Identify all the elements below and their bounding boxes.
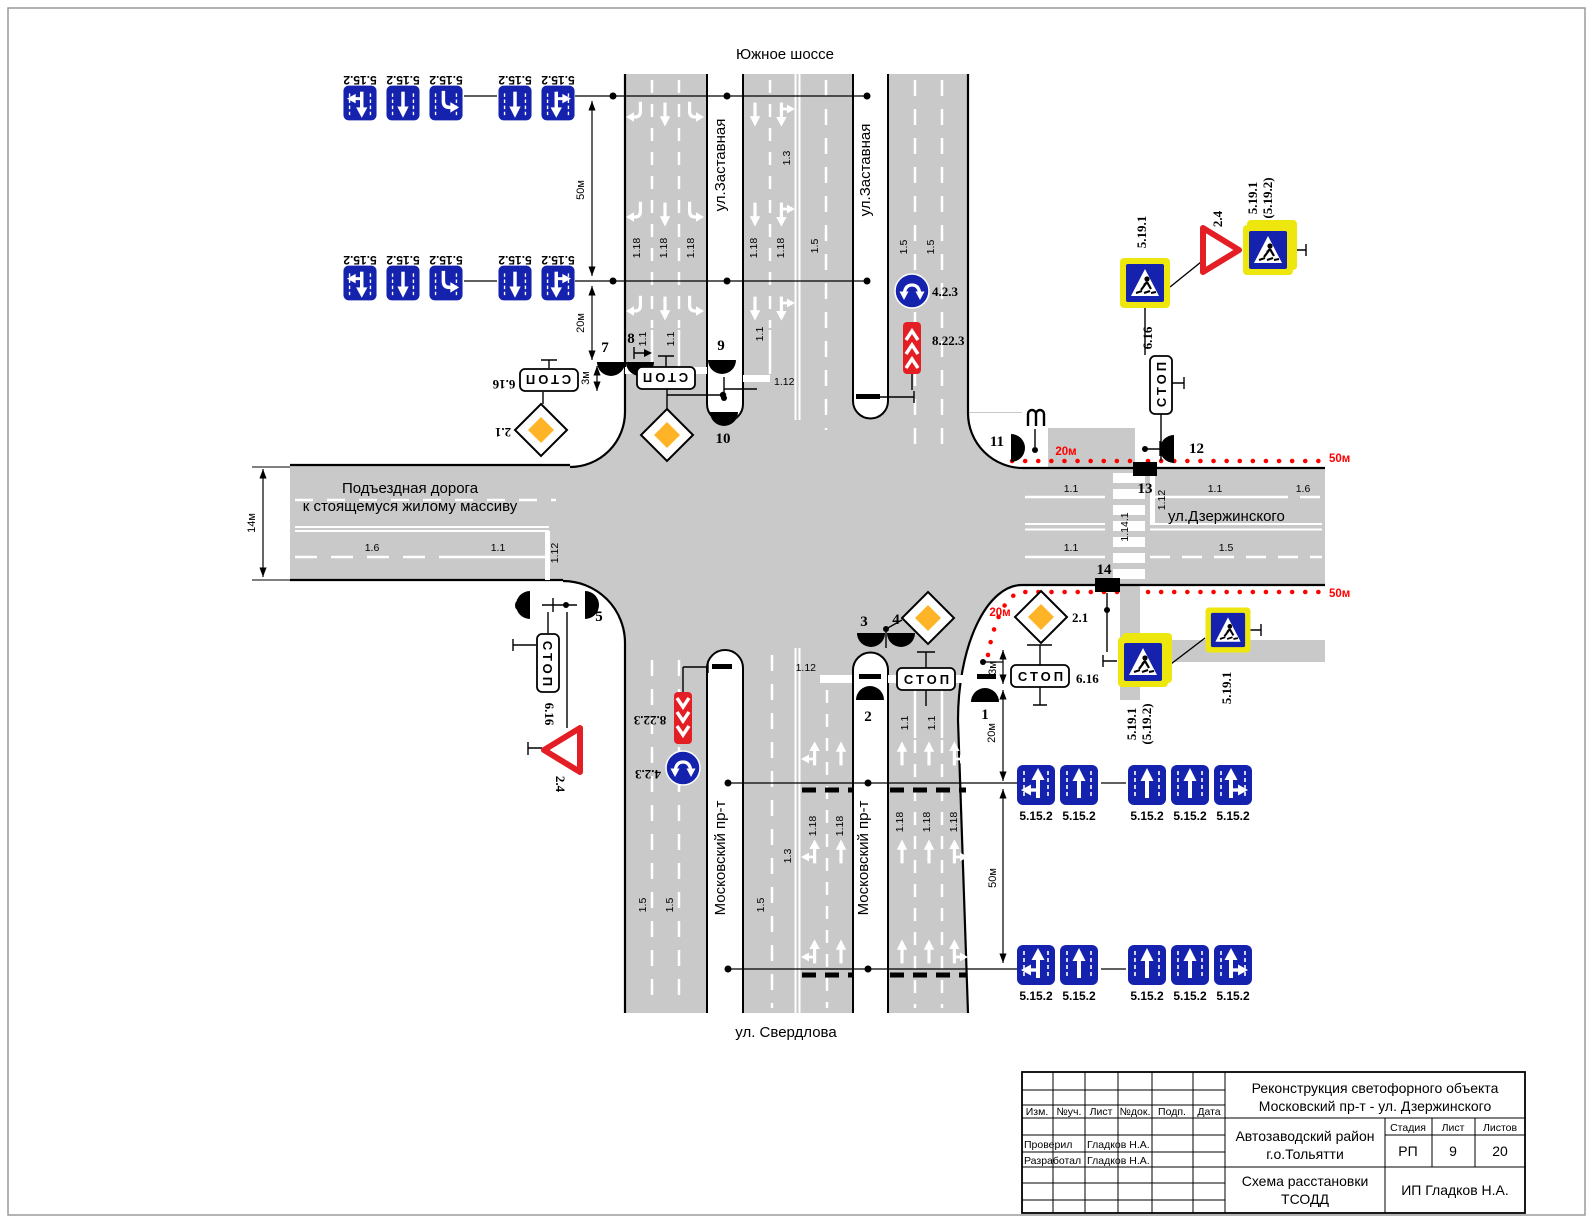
crossing-sign-b [1243, 220, 1297, 275]
svg-text:1.1: 1.1 [899, 716, 911, 731]
svg-text:1.1: 1.1 [1064, 542, 1079, 554]
svg-text:2.4: 2.4 [1210, 210, 1225, 227]
svg-text:5.15.2: 5.15.2 [1173, 809, 1207, 823]
developed-label: Разработал [1024, 1155, 1081, 1167]
svg-text:4.2.3: 4.2.3 [635, 767, 662, 782]
svg-text:1.6: 1.6 [1296, 483, 1311, 495]
svg-text:2.1: 2.1 [1072, 610, 1088, 625]
svg-text:1.1: 1.1 [926, 716, 938, 731]
svg-text:5.19.1: 5.19.1 [1134, 216, 1149, 249]
svg-text:№док.: №док. [1120, 1106, 1151, 1118]
svg-text:1.18: 1.18 [631, 238, 643, 259]
svg-text:5.15.2: 5.15.2 [1062, 989, 1096, 1003]
stop-plate-d: СТОП [1011, 665, 1069, 687]
svg-text:5.19.1: 5.19.1 [1245, 182, 1260, 215]
title-block: Изм. №уч. Лист №док. Подп. Дата Проверил… [1022, 1072, 1525, 1213]
signal-13 [1133, 462, 1157, 476]
give-way-south [544, 728, 580, 772]
svg-text:1.18: 1.18 [921, 812, 933, 833]
svg-text:20м: 20м [986, 723, 998, 743]
street-east: ул.Дзержинского [1168, 508, 1285, 525]
street-south: ул. Свердлова [735, 1024, 837, 1041]
project-title-2: Московский пр-т - ул. Дзержинского [1259, 1098, 1492, 1114]
svg-text:7: 7 [601, 340, 609, 356]
detour-sign-north [895, 274, 929, 308]
street-west-1: Подъездная дорога [342, 480, 479, 497]
signal-7 [597, 362, 625, 376]
svg-text:6.16: 6.16 [1076, 671, 1099, 686]
svg-text:20м: 20м [989, 607, 1010, 619]
svg-text:№уч.: №уч. [1057, 1106, 1082, 1118]
svg-text:50м: 50м [1329, 588, 1350, 600]
svg-text:(5.19.2): (5.19.2) [1139, 703, 1154, 744]
svg-text:5.15.2: 5.15.2 [429, 73, 463, 87]
lane-sign-row-north-1: 5.15.2 5.15.2 5.15.2 5.15.2 5.15.2 [343, 73, 575, 120]
svg-text:1.5: 1.5 [664, 898, 676, 913]
scheme-drawing: 1.18 1.18 1.18 1.18 1.18 1.5 1.3 1.5 1.5… [0, 0, 1593, 1223]
svg-text:Лист: Лист [1442, 1122, 1465, 1134]
svg-text:1.6: 1.6 [365, 542, 380, 554]
svg-text:14м: 14м [246, 513, 258, 533]
svg-text:8.22.3: 8.22.3 [633, 713, 666, 728]
stop-plate-e: СТОП [537, 634, 559, 692]
crossing-sign-d [1206, 608, 1251, 653]
svg-text:1: 1 [981, 707, 989, 723]
svg-text:1.1: 1.1 [637, 332, 649, 347]
svg-text:1.18: 1.18 [894, 812, 906, 833]
svg-text:1.1: 1.1 [665, 332, 677, 347]
svg-text:8.22.3: 8.22.3 [932, 333, 965, 348]
company: ИП Гладков Н.А. [1401, 1182, 1509, 1198]
svg-text:5.15.2: 5.15.2 [541, 253, 575, 267]
chevron-sign-south [674, 692, 692, 744]
svg-text:14: 14 [1097, 562, 1113, 578]
svg-text:Стадия: Стадия [1390, 1122, 1426, 1134]
district-2: г.о.Тольятти [1266, 1146, 1344, 1162]
svg-text:5.15.2: 5.15.2 [386, 253, 420, 267]
developed-by: Гладков Н.А. [1087, 1155, 1150, 1167]
svg-text:5.15.2: 5.15.2 [343, 253, 377, 267]
street-west-2: к стоящемуся жилому массиву [303, 498, 518, 515]
median-south-2: Московский пр-т [855, 801, 872, 916]
svg-text:СТОП: СТОП [640, 370, 688, 385]
median-south-1: Московский пр-т [712, 801, 729, 916]
tsodd-scheme-sheet: 1.18 1.18 1.18 1.18 1.18 1.5 1.3 1.5 1.5… [0, 0, 1593, 1223]
svg-text:1.18: 1.18 [834, 816, 846, 837]
chevron-sign-north [903, 322, 921, 374]
stop-plate-b: СТОП [637, 367, 695, 389]
svg-text:5.15.2: 5.15.2 [498, 253, 532, 267]
svg-text:1.18: 1.18 [948, 812, 960, 833]
svg-text:СТОП: СТОП [1018, 669, 1066, 684]
svg-text:50м: 50м [575, 180, 587, 200]
svg-text:1.18: 1.18 [807, 816, 819, 837]
svg-text:5.15.2: 5.15.2 [1173, 989, 1207, 1003]
district-1: Автозаводский район [1235, 1128, 1374, 1144]
svg-text:6.16: 6.16 [492, 377, 515, 392]
signal-12 [1160, 435, 1174, 463]
stop-plate-c: СТОП [897, 668, 955, 690]
svg-text:Подп.: Подп. [1158, 1106, 1186, 1118]
svg-text:5.15.2: 5.15.2 [1019, 989, 1053, 1003]
svg-text:1.1: 1.1 [1064, 483, 1079, 495]
svg-text:СТОП: СТОП [523, 372, 571, 387]
svg-text:8: 8 [627, 331, 635, 347]
svg-text:1.5: 1.5 [755, 898, 767, 913]
svg-text:1.3: 1.3 [782, 849, 794, 864]
svg-text:1.3: 1.3 [781, 151, 793, 166]
crossing-sign-a [1120, 258, 1170, 308]
svg-text:3: 3 [860, 614, 868, 630]
lane-sign-row-south-2: 5.15.2 5.15.2 5.15.2 5.15.2 5.15.2 [1017, 945, 1252, 1003]
priority-sign-a [515, 404, 567, 456]
svg-text:5.15.2: 5.15.2 [386, 73, 420, 87]
svg-text:1.1: 1.1 [1208, 483, 1223, 495]
median-north-1: ул.Заставная [712, 119, 729, 212]
give-way-north [1203, 228, 1239, 272]
svg-text:Дата: Дата [1197, 1106, 1220, 1118]
svg-text:10: 10 [716, 431, 731, 447]
svg-text:5.15.2: 5.15.2 [1062, 809, 1096, 823]
svg-text:1.12: 1.12 [796, 662, 817, 674]
project-title-1: Реконструкция светофорного объекта [1252, 1080, 1499, 1096]
svg-text:5.15.2: 5.15.2 [1130, 809, 1164, 823]
lane-sign-row-south-1: 5.15.2 5.15.2 5.15.2 5.15.2 5.15.2 [1017, 765, 1252, 823]
priority-sign-d [1015, 591, 1067, 643]
svg-text:1.18: 1.18 [748, 238, 760, 259]
svg-text:11: 11 [990, 434, 1004, 450]
svg-text:Изм.: Изм. [1026, 1106, 1049, 1118]
svg-text:5.19.1: 5.19.1 [1124, 708, 1139, 741]
svg-text:4: 4 [892, 612, 900, 628]
crossing-sign-c [1118, 633, 1172, 687]
svg-text:Лист: Лист [1090, 1106, 1113, 1118]
svg-text:СТОП: СТОП [540, 641, 555, 689]
svg-text:6.16: 6.16 [542, 703, 557, 726]
svg-text:1.1: 1.1 [491, 542, 506, 554]
scheme-2: ТСОДД [1281, 1191, 1329, 1207]
svg-text:3м: 3м [580, 371, 592, 385]
signal-14 [1095, 578, 1120, 592]
svg-text:12: 12 [1189, 441, 1204, 457]
svg-text:5.15.2: 5.15.2 [1216, 809, 1250, 823]
svg-text:1.18: 1.18 [685, 238, 697, 259]
svg-text:1.14.1: 1.14.1 [1119, 512, 1131, 541]
svg-text:5.15.2: 5.15.2 [1216, 989, 1250, 1003]
svg-text:50м: 50м [1329, 453, 1350, 465]
lane-sign-row-north-2: 5.15.2 5.15.2 5.15.2 5.15.2 5.15.2 [343, 253, 575, 300]
svg-text:1.5: 1.5 [809, 239, 821, 254]
checked-label: Проверил [1024, 1139, 1072, 1151]
svg-text:13: 13 [1138, 481, 1153, 497]
svg-text:Листов: Листов [1483, 1122, 1518, 1134]
sheets-value: 20 [1492, 1143, 1508, 1159]
scheme-1: Схема расстановки [1242, 1173, 1369, 1189]
svg-text:50м: 50м [987, 868, 999, 888]
svg-text:1.12: 1.12 [549, 543, 561, 564]
svg-text:1.5: 1.5 [637, 898, 649, 913]
svg-text:6.16: 6.16 [1140, 326, 1155, 349]
svg-text:5.15.2: 5.15.2 [498, 73, 532, 87]
checked-by: Гладков Н.А. [1087, 1139, 1150, 1151]
svg-text:5.15.2: 5.15.2 [429, 253, 463, 267]
svg-text:5.15.2: 5.15.2 [1130, 989, 1164, 1003]
svg-text:20м: 20м [575, 313, 587, 333]
median-north-2: ул.Заставная [857, 124, 874, 217]
stop-plate-f: СТОП [1150, 356, 1172, 414]
svg-text:9: 9 [717, 338, 725, 354]
svg-text:СТОП: СТОП [1154, 359, 1169, 407]
svg-text:1.18: 1.18 [658, 238, 670, 259]
svg-text:1.1: 1.1 [754, 327, 766, 342]
svg-text:20м: 20м [1055, 446, 1076, 458]
svg-text:4.2.3: 4.2.3 [932, 284, 959, 299]
svg-text:5.19.1: 5.19.1 [1219, 672, 1234, 705]
svg-text:2: 2 [864, 709, 872, 725]
svg-text:2.1: 2.1 [495, 425, 511, 440]
svg-text:1.18: 1.18 [775, 238, 787, 259]
svg-text:5.15.2: 5.15.2 [343, 73, 377, 87]
svg-text:2.4: 2.4 [553, 776, 568, 793]
stop-plate-a: СТОП [520, 369, 578, 391]
svg-text:СТОП: СТОП [904, 672, 952, 687]
svg-text:1.5: 1.5 [1219, 542, 1234, 554]
svg-text:3м: 3м [987, 661, 999, 675]
svg-text:1.5: 1.5 [898, 240, 910, 255]
detour-sign-south [666, 751, 700, 785]
sheet-value: 9 [1449, 1143, 1457, 1159]
svg-text:1.12: 1.12 [774, 376, 795, 388]
svg-text:(5.19.2): (5.19.2) [1260, 177, 1275, 218]
svg-text:5.15.2: 5.15.2 [1019, 809, 1053, 823]
svg-text:5: 5 [595, 609, 603, 625]
road-network [290, 74, 1325, 1013]
svg-text:6: 6 [515, 598, 523, 614]
svg-text:5.15.2: 5.15.2 [541, 73, 575, 87]
stage-value: РП [1398, 1143, 1417, 1159]
svg-text:1.5: 1.5 [925, 240, 937, 255]
svg-text:1.12: 1.12 [1156, 490, 1168, 511]
street-north: Южное шоссе [736, 46, 834, 63]
